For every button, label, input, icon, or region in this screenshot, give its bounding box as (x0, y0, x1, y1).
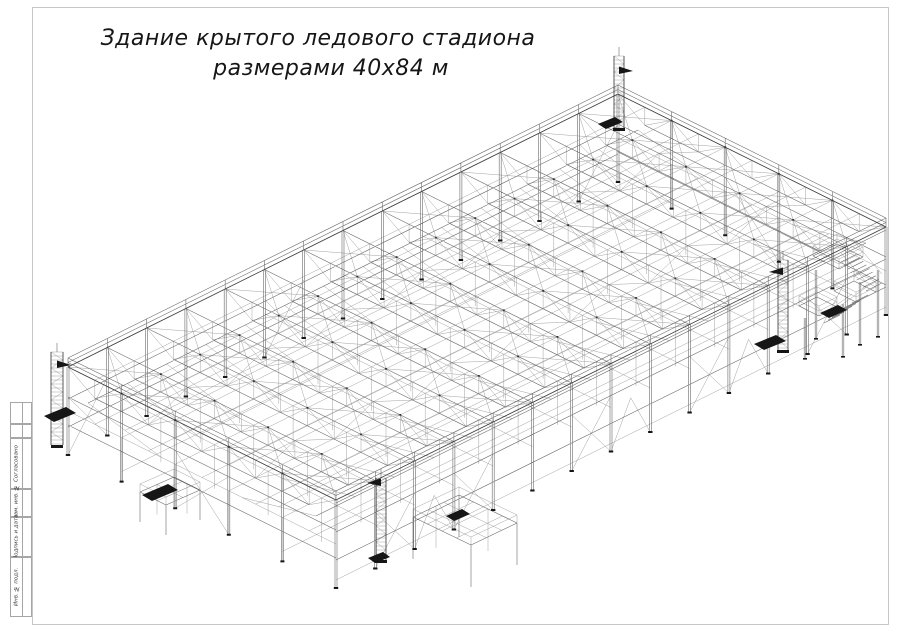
titleblock-cell-soglasovano: Согласовано (10, 438, 32, 489)
drawing-sheet: Здание крытого ледового стадиона размера… (0, 0, 900, 636)
titleblock-cell-inv-podl: Инв. № подл. (10, 557, 32, 617)
titleblock-label-podpis-data: Подпись и дата (11, 518, 22, 556)
titleblock-cell-empty-2 (10, 424, 32, 438)
titleblock-label-vzam-inv: Взам. инв. № (11, 490, 22, 516)
titleblock-label-inv-podl: Инв. № подл. (11, 558, 22, 616)
titleblock-cell-empty-1 (10, 402, 32, 424)
drawing-frame (32, 7, 889, 625)
titleblock-label-soglasovano: Согласовано (11, 439, 22, 488)
drawing-title-line1: Здание крытого ледового стадиона (92, 24, 544, 54)
drawing-title-line2: размерами 40х84 м (118, 54, 544, 84)
titleblock-cell-vzam-inv: Взам. инв. № (10, 489, 32, 517)
titleblock-cell-podpis-data: Подпись и дата (10, 517, 32, 557)
drawing-title: Здание крытого ледового стадиона размера… (92, 24, 544, 84)
